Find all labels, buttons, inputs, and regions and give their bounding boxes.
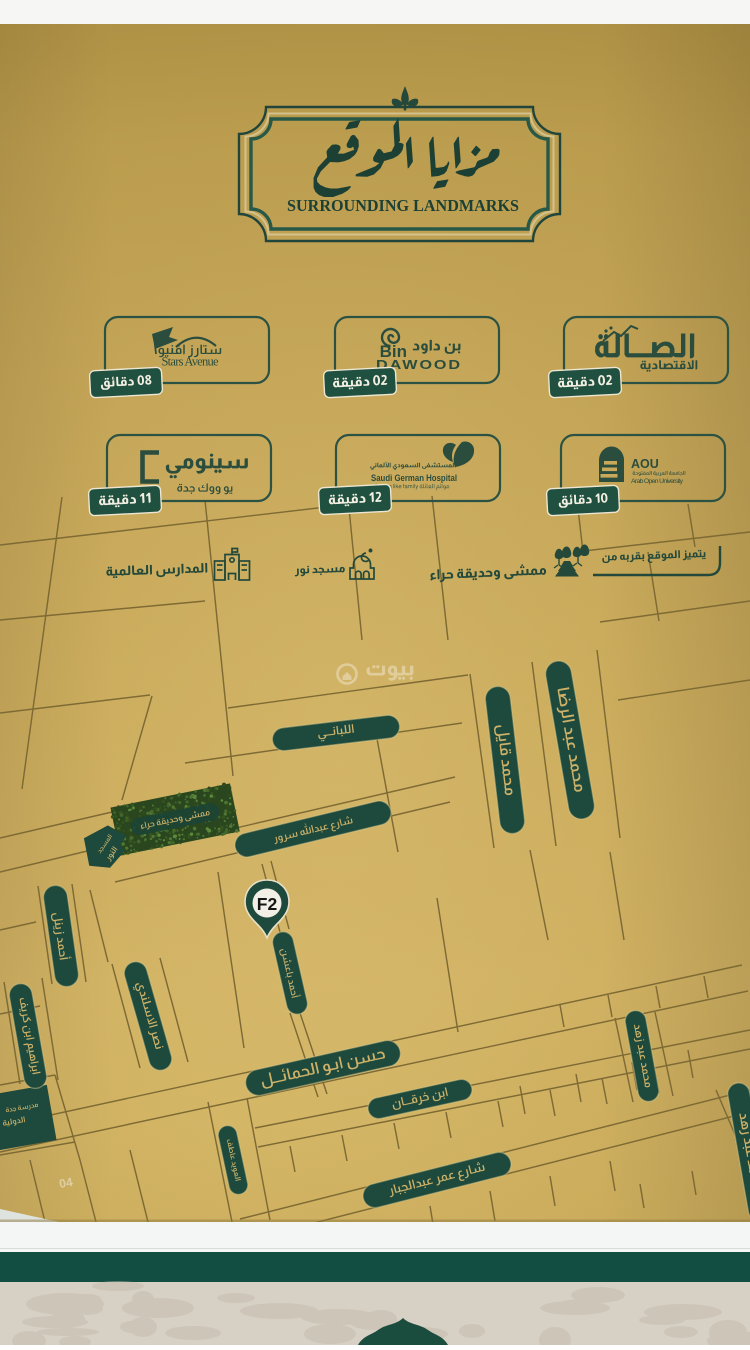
svg-text:SURROUNDING LANDMARKS: SURROUNDING LANDMARKS (287, 196, 519, 215)
svg-text:Saudi German Hospital: Saudi German Hospital (371, 473, 457, 484)
svg-text:Stars Avenue: Stars Avenue (162, 355, 219, 369)
svg-text:F2: F2 (257, 894, 278, 914)
svg-text:Arab Open University: Arab Open University (631, 478, 684, 485)
svg-text:04: 04 (58, 1175, 74, 1191)
svg-text:AOU: AOU (631, 457, 659, 471)
